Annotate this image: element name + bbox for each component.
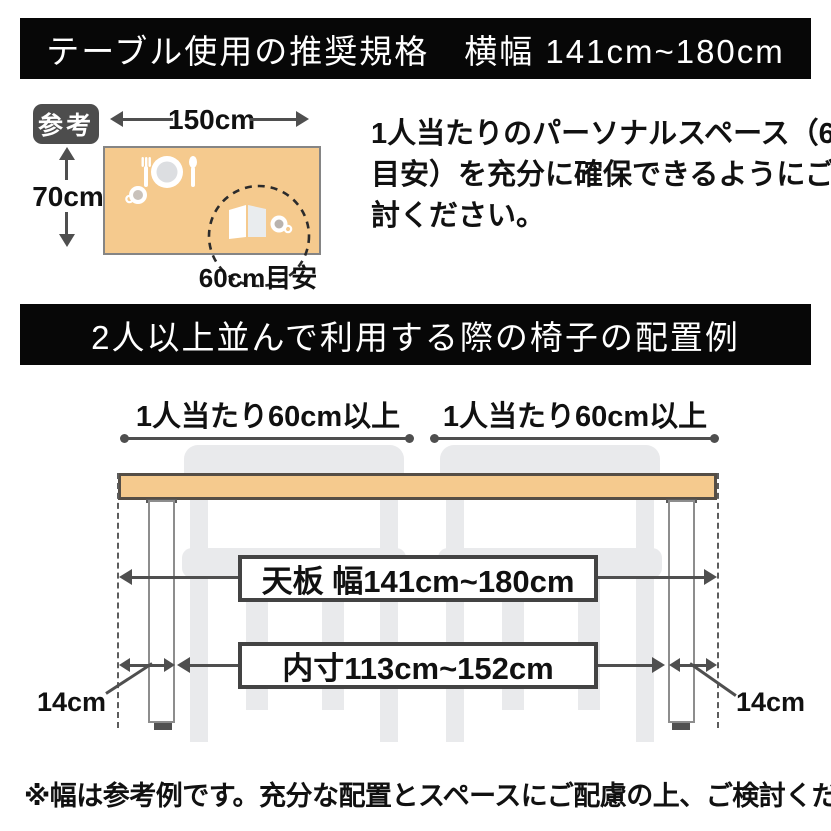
header-banner: テーブル使用の推奨規格 横幅 141cm~180cm xyxy=(20,18,811,79)
edge-dashed-line-right xyxy=(717,473,719,728)
chair-leg xyxy=(446,500,464,742)
description-line: 目安）を充分に確保できるようにご検 xyxy=(371,155,831,196)
chair-leg xyxy=(380,500,398,742)
fork-icon xyxy=(142,157,151,187)
line-end-dot xyxy=(120,434,129,443)
dimension-shaft xyxy=(598,664,654,667)
header-banner-text: テーブル使用の推奨規格 横幅 141cm~180cm xyxy=(46,25,785,73)
double-arrow-right-icon xyxy=(164,658,175,672)
table-leg-right xyxy=(668,500,695,723)
line-end-dot xyxy=(405,434,414,443)
arrow-down-icon xyxy=(59,234,75,247)
description-line: 討ください。 xyxy=(371,196,831,237)
table-leg-foot xyxy=(154,723,172,730)
spoon-icon xyxy=(189,156,197,187)
per-person-label-right: 1人当たり60cm以上 xyxy=(425,393,725,435)
dimension-shaft xyxy=(250,118,298,121)
line-end-dot xyxy=(710,434,719,443)
inner-width-label: 内寸113cm~152cm xyxy=(282,643,553,688)
reference-badge: 参考 xyxy=(33,104,99,144)
table-leg-foot xyxy=(672,723,690,730)
arrow-right-icon xyxy=(296,111,309,127)
tabletop-width-box: 天板 幅141cm~180cm xyxy=(238,555,598,602)
per-person-line-left xyxy=(124,437,412,440)
leg-offset-label-right: 14cm xyxy=(736,687,816,718)
reference-badge-text: 参考 xyxy=(38,106,94,142)
arrow-right-icon xyxy=(704,569,717,585)
table-depth-label: 70cm xyxy=(30,181,106,213)
infographic-page: テーブル使用の推奨規格 横幅 141cm~180cm 参考 150cm 70cm xyxy=(0,0,831,831)
open-book-icon xyxy=(229,205,266,239)
chair-leg xyxy=(190,500,208,742)
dimension-shaft xyxy=(130,576,238,579)
dimension-shaft xyxy=(121,118,173,121)
footnote: ※幅は参考例です。充分な配置とスペースにご配慮の上、ご検討ください。 xyxy=(24,774,831,813)
chair-leg xyxy=(636,500,654,742)
coffee-cup-icon xyxy=(126,186,147,204)
dimension-shaft xyxy=(65,212,68,234)
table-leg-left xyxy=(148,500,175,723)
description-line: 1人当たりのパーソナルスペース（60cm xyxy=(371,114,831,155)
double-arrow-right-icon xyxy=(706,658,717,672)
dimension-shaft xyxy=(598,576,706,579)
personal-space-circle-label: 60cm目安 xyxy=(158,258,358,295)
arrow-right-icon xyxy=(652,657,665,673)
description-paragraph: 1人当たりのパーソナルスペース（60cm 目安）を充分に確保できるようにご検 討… xyxy=(371,114,831,237)
line-end-dot xyxy=(430,434,439,443)
dimension-shaft xyxy=(65,158,68,180)
arrangement-banner: 2人以上並んで利用する際の椅子の配置例 xyxy=(20,304,811,365)
per-person-label-left: 1人当たり60cm以上 xyxy=(118,393,418,435)
table-width-label: 150cm xyxy=(168,104,254,136)
arrangement-banner-text: 2人以上並んで利用する際の椅子の配置例 xyxy=(91,311,740,359)
edge-dashed-line-left xyxy=(117,473,119,728)
tabletop-width-label: 天板 幅141cm~180cm xyxy=(262,556,575,601)
plate-icon xyxy=(151,156,183,188)
inner-width-box: 内寸113cm~152cm xyxy=(238,642,598,689)
teacup-icon xyxy=(271,216,292,233)
tabletop xyxy=(118,473,717,500)
leg-offset-label-left: 14cm xyxy=(26,687,106,718)
dimension-shaft xyxy=(188,664,238,667)
per-person-line-right xyxy=(433,437,717,440)
